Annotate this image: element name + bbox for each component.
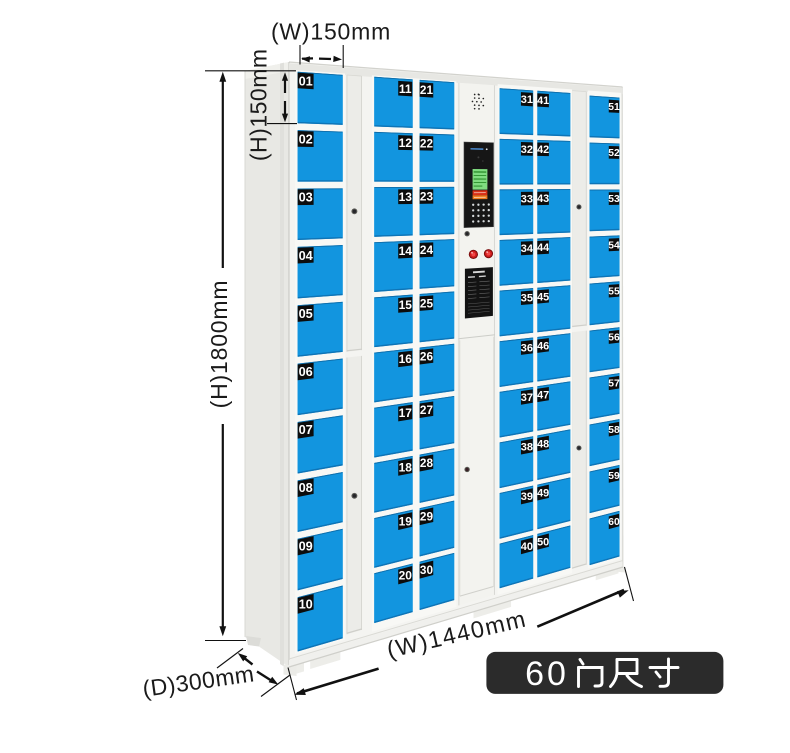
svg-text:59: 59 (608, 471, 620, 482)
svg-text:27: 27 (420, 403, 434, 417)
svg-text:38: 38 (521, 442, 533, 454)
svg-text:25: 25 (420, 296, 434, 310)
svg-text:39: 39 (521, 491, 533, 503)
svg-text:60: 60 (525, 655, 569, 693)
svg-text:55: 55 (608, 286, 620, 297)
svg-text:02: 02 (299, 132, 313, 147)
svg-text:18: 18 (399, 460, 413, 474)
svg-text:50: 50 (537, 536, 549, 548)
svg-text:47: 47 (537, 389, 549, 401)
svg-text:52: 52 (608, 148, 620, 159)
svg-text:56: 56 (608, 333, 620, 344)
svg-text:48: 48 (537, 438, 549, 450)
svg-text:24: 24 (420, 243, 434, 257)
svg-text:01: 01 (299, 74, 313, 89)
svg-text:10: 10 (299, 596, 313, 611)
svg-text:13: 13 (399, 190, 413, 204)
svg-text:08: 08 (299, 480, 313, 495)
svg-text:31: 31 (521, 94, 533, 106)
svg-text:41: 41 (537, 95, 549, 107)
svg-text:53: 53 (608, 194, 620, 205)
svg-text:23: 23 (420, 190, 434, 204)
svg-text:11: 11 (399, 82, 412, 96)
svg-text:(H)150mm: (H)150mm (246, 48, 272, 161)
svg-text:22: 22 (420, 136, 434, 150)
svg-text:51: 51 (608, 102, 620, 113)
svg-text:07: 07 (299, 422, 313, 437)
svg-text:49: 49 (537, 487, 549, 499)
svg-text:15: 15 (399, 298, 413, 312)
svg-text:37: 37 (521, 392, 533, 404)
svg-text:28: 28 (420, 456, 434, 470)
svg-text:12: 12 (399, 136, 413, 150)
svg-text:(H)1800mm: (H)1800mm (206, 280, 232, 409)
svg-text:26: 26 (420, 350, 434, 364)
svg-text:06: 06 (299, 364, 313, 379)
svg-text:20: 20 (399, 568, 413, 582)
svg-text:30: 30 (420, 563, 434, 577)
svg-text:16: 16 (399, 352, 413, 366)
svg-text:36: 36 (521, 342, 533, 354)
svg-text:04: 04 (299, 248, 314, 263)
svg-text:45: 45 (537, 291, 549, 303)
svg-text:58: 58 (608, 425, 620, 436)
svg-text:17: 17 (399, 406, 413, 420)
svg-text:14: 14 (399, 244, 413, 258)
svg-text:60: 60 (608, 517, 620, 528)
svg-text:21: 21 (420, 83, 434, 97)
svg-text:19: 19 (399, 514, 413, 528)
svg-text:57: 57 (608, 379, 620, 390)
svg-text:40: 40 (521, 541, 533, 553)
svg-text:44: 44 (537, 242, 549, 254)
svg-text:09: 09 (299, 538, 313, 553)
svg-text:54: 54 (608, 240, 620, 251)
svg-text:46: 46 (537, 340, 549, 352)
svg-text:32: 32 (521, 144, 533, 156)
svg-text:35: 35 (521, 293, 533, 305)
svg-text:05: 05 (299, 306, 313, 321)
svg-text:43: 43 (537, 193, 549, 205)
svg-text:33: 33 (521, 193, 533, 205)
svg-text:03: 03 (299, 190, 313, 205)
svg-text:42: 42 (537, 144, 549, 156)
svg-text:29: 29 (420, 509, 434, 523)
svg-text:34: 34 (521, 243, 534, 255)
svg-text:(W)150mm: (W)150mm (271, 19, 391, 45)
